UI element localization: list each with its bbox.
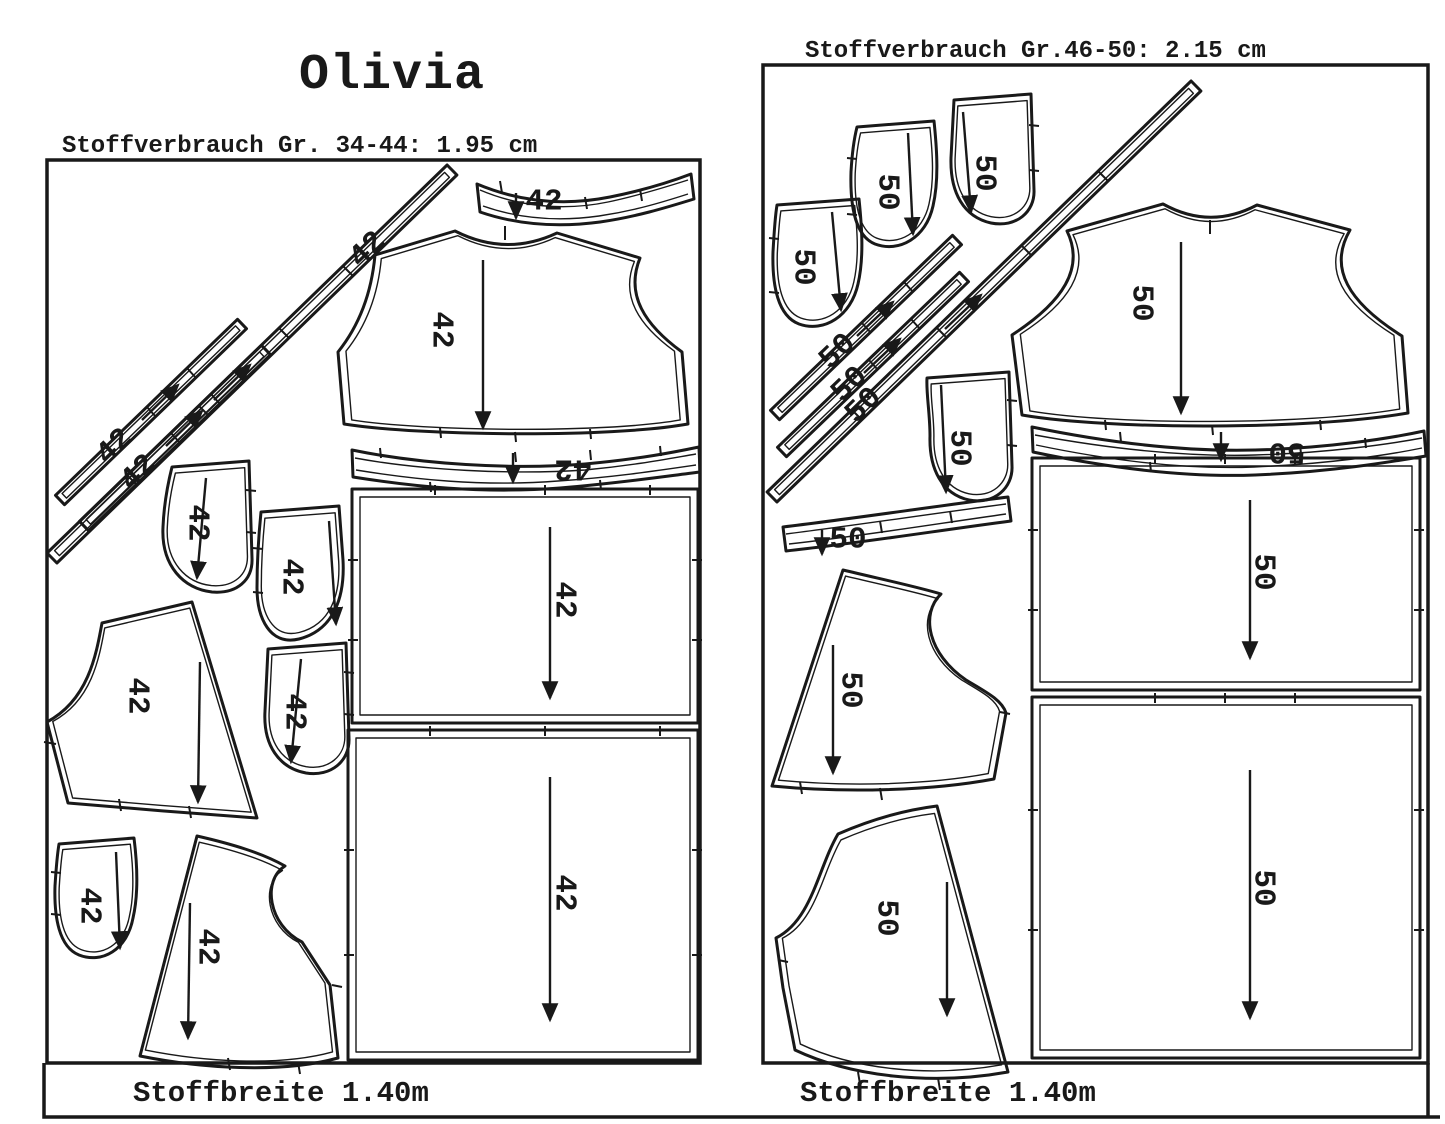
size-label: 42 (277, 693, 312, 730)
seam-line (1040, 466, 1412, 682)
cut-line (1032, 427, 1426, 475)
seam-line (55, 172, 450, 555)
notches (344, 726, 702, 955)
piece-skirt-panel-upper-right: 50 (1028, 454, 1424, 690)
piece-skirt-panel-lower-right: 50 (1028, 693, 1424, 1058)
size-label: 50 (870, 173, 905, 210)
size-label: 50 (833, 671, 868, 708)
size-label: 50 (1268, 434, 1305, 469)
size-label: 42 (120, 677, 155, 714)
seam-line (145, 842, 332, 1061)
piece-sleeve-upper-left: 42 (44, 602, 257, 818)
size-label: 50 (1124, 284, 1159, 321)
notches (1028, 454, 1424, 610)
cut-line (783, 497, 1011, 551)
notches (1105, 220, 1321, 435)
size-label: 42 (342, 224, 393, 275)
left-panel: Stoffverbrauch Gr. 34-44: 1.95 cm Stoffb… (44, 133, 702, 1110)
size-label: 42 (554, 451, 591, 486)
cut-line (776, 806, 1008, 1078)
grainline-arrow (116, 852, 120, 948)
size-label: 50 (942, 429, 977, 466)
page-title: Olivia (299, 47, 485, 104)
size-label: 42 (547, 874, 582, 911)
size-label: 50 (829, 523, 866, 558)
cut-line (1032, 697, 1420, 1058)
piece-pocket-3-left: 42 (265, 643, 354, 774)
piece-waistband-right: 50 (1032, 427, 1426, 475)
sewing-pattern-sheet: Olivia Stoffverbrauch Gr. 34-44: 1.95 cm… (0, 0, 1445, 1124)
seam-line (360, 497, 690, 715)
size-label: 50 (967, 154, 1002, 191)
piece-skirt-panel-upper-left: 42 (348, 485, 702, 723)
piece-bodice-left: 42 (338, 226, 688, 442)
cut-line (338, 231, 688, 434)
size-label: 50 (1246, 553, 1281, 590)
notches (440, 226, 591, 442)
notches (800, 712, 1010, 800)
size-label: 42 (72, 887, 107, 924)
size-label: 50 (869, 899, 904, 936)
cut-line (1012, 204, 1408, 426)
left-footer: Stoffbreite 1.40m (133, 1077, 429, 1110)
piece-pocket-2-right: 50 (951, 94, 1039, 224)
seam-line (1040, 705, 1412, 1050)
seam-line (782, 813, 1001, 1070)
grainline-arrow (832, 212, 841, 310)
grainline-arrow (857, 302, 893, 336)
cut-line (348, 730, 698, 1060)
notches (348, 485, 702, 640)
cut-line (140, 836, 338, 1068)
cut-line (1032, 458, 1420, 690)
grainline-arrow (188, 903, 190, 1038)
seam-line (356, 738, 690, 1052)
piece-pocket-1-left: 42 (163, 461, 256, 592)
size-label: 50 (786, 248, 821, 285)
piece-neckband-left: 42 (477, 174, 694, 225)
size-label: 42 (274, 558, 309, 595)
piece-pocket-2-left: 42 (253, 506, 343, 640)
piece-bias-strip-2-right: 50 (778, 272, 969, 456)
size-label: 42 (424, 311, 459, 348)
right-fabric-frame (763, 65, 1428, 1063)
piece-pocket-4-left: 42 (51, 838, 137, 958)
piece-neckband-right: 50 (783, 497, 1011, 558)
grainline-arrow (142, 385, 178, 420)
piece-sleeve-lower-right: 50 (776, 806, 1008, 1090)
piece-sleeve-lower-left: 42 (140, 836, 342, 1074)
piece-skirt-panel-lower-left: 42 (344, 726, 702, 1060)
size-label: 42 (525, 185, 562, 220)
size-label: 42 (180, 504, 215, 541)
piece-sleeve-upper-right: 50 (772, 570, 1010, 800)
size-label: 50 (1246, 869, 1281, 906)
cut-line (47, 165, 457, 563)
right-footer: Stoffbreite 1.40m (800, 1077, 1096, 1110)
cut-line (352, 447, 700, 490)
seam-line (1020, 209, 1399, 422)
right-panel: Stoffverbrauch Gr.46-50: 2.15 cm Stoffbr… (763, 38, 1428, 1110)
seam-line (346, 236, 680, 430)
grainline-arrow (198, 662, 200, 802)
piece-pocket-4-right: 50 (927, 372, 1017, 501)
pattern-cutting-layout-diagram: Olivia Stoffverbrauch Gr. 34-44: 1.95 cm… (0, 0, 1445, 1124)
piece-waistband-left: 42 (352, 446, 700, 492)
size-label: 42 (190, 928, 225, 965)
cut-line (772, 570, 1006, 790)
grainline-arrow (908, 133, 913, 234)
piece-pocket-3-right: 50 (769, 199, 862, 326)
piece-tie-strap-left: 42 (47, 165, 457, 563)
size-label: 42 (547, 581, 582, 618)
right-header: Stoffverbrauch Gr.46-50: 2.15 cm (805, 38, 1266, 65)
left-header: Stoffverbrauch Gr. 34-44: 1.95 cm (62, 133, 537, 160)
cut-line (352, 489, 698, 723)
piece-bodice-right: 50 (1012, 204, 1408, 435)
notches (1028, 693, 1424, 930)
